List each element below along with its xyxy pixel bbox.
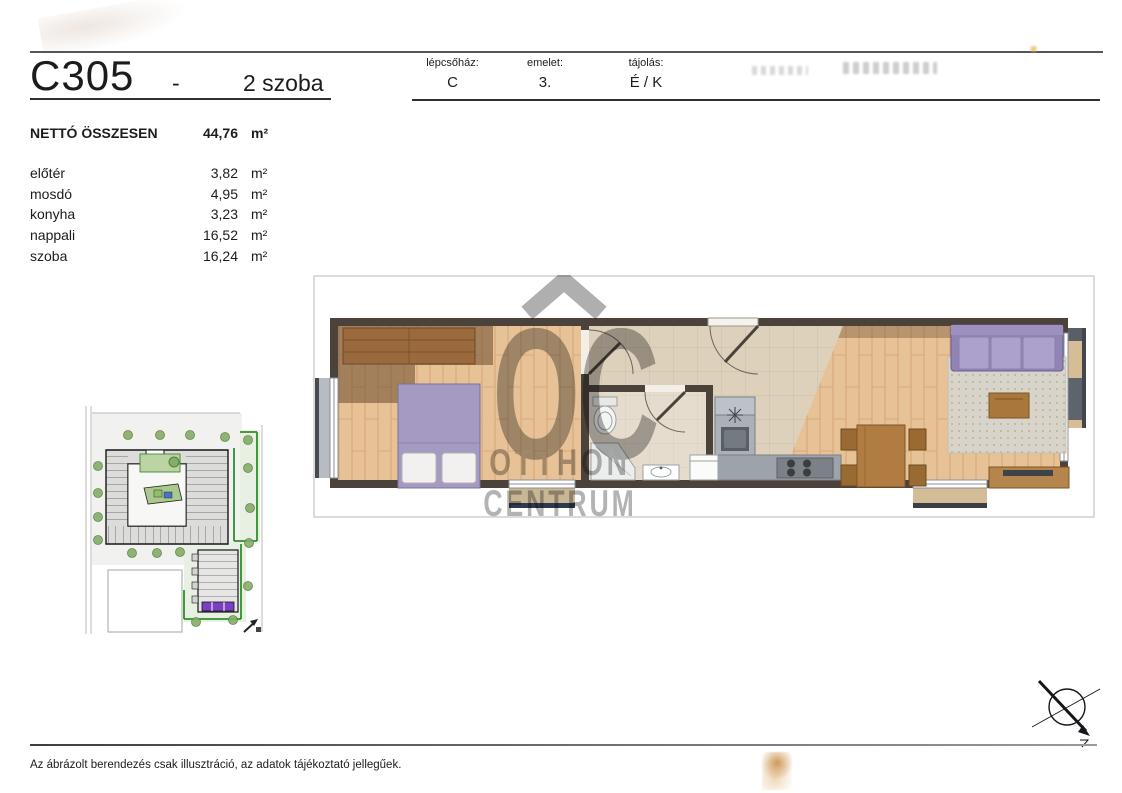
unit-info-table: lépcsőház: C emelet: 3. tájolás: É / K [405, 57, 702, 91]
kitchen-light-symbol [727, 407, 743, 423]
area-row: konyha 3,23 m² [30, 206, 278, 227]
unit-id: C305 [30, 52, 134, 100]
tv-stand [989, 467, 1069, 488]
floorplan-sheet: C305 - 2 szoba lépcsőház: C emelet: 3. t… [0, 0, 1122, 793]
washing-machine [690, 455, 718, 480]
info-col-floor: emelet: 3. [500, 57, 590, 91]
footer-rule [30, 744, 1097, 746]
balcony-left [315, 378, 330, 478]
room-area-unit: m² [238, 227, 278, 243]
coffee-table [989, 393, 1029, 418]
room-name: nappali [30, 227, 152, 243]
disclaimer-text: Az ábrázolt berendezés csak illusztráció… [30, 759, 401, 771]
watermark-line2: CENTRUM [483, 483, 636, 518]
title-separator: - [172, 70, 180, 97]
room-area-value: 3,23 [152, 206, 238, 222]
watermark-line1: OTTHON [489, 441, 631, 483]
net-total-row: NETTÓ ÖSSZESEN 44,76 m² [30, 125, 278, 141]
site-plan [78, 400, 268, 640]
room-name: konyha [30, 206, 152, 222]
info-underline [412, 99, 1100, 101]
room-area-value: 4,95 [152, 186, 238, 202]
scan-dot [1028, 45, 1039, 53]
pillow [402, 453, 436, 483]
area-row: előtér 3,82 m² [30, 165, 278, 186]
room-name: előtér [30, 165, 152, 181]
balcony-right [1068, 328, 1086, 428]
pillow [442, 453, 476, 483]
info-col-staircase: lépcsőház: C [405, 57, 500, 91]
dining-table [857, 425, 905, 487]
room-area-unit: m² [238, 248, 278, 264]
balcony-living [913, 488, 987, 508]
area-row: mosdó 4,95 m² [30, 186, 278, 207]
net-total-label: NETTÓ ÖSSZESEN [30, 125, 182, 141]
room-area-list: előtér 3,82 m² mosdó 4,95 m² konyha 3,23… [30, 165, 278, 268]
watermark-logo: OC OTTHON CENTRUM [483, 281, 657, 518]
staircase-label: lépcsőház: [405, 57, 500, 69]
room-area-unit: m² [238, 186, 278, 202]
room-area-unit: m² [238, 206, 278, 222]
area-row: szoba 16,24 m² [30, 248, 278, 269]
net-total-unit: m² [238, 125, 278, 141]
room-area-value: 3,82 [152, 165, 238, 181]
sofa [951, 325, 1063, 371]
chair [841, 429, 858, 450]
faded-text [752, 66, 808, 75]
floorplan-drawing: OC OTTHON CENTRUM [313, 275, 1095, 518]
room-area-value: 16,52 [152, 227, 238, 243]
room-area-unit: m² [238, 165, 278, 181]
room-count: 2 szoba [243, 70, 324, 97]
neighbor-building [108, 570, 182, 632]
floor-label: emelet: [500, 57, 590, 69]
room-area-value: 16,24 [152, 248, 238, 264]
bed [398, 384, 480, 488]
room-name: mosdó [30, 186, 152, 202]
garden [144, 484, 182, 504]
header-rule [30, 51, 1103, 53]
north-compass-icon [1022, 678, 1102, 750]
annex-building [192, 550, 238, 612]
chair [841, 465, 858, 486]
chair [909, 465, 926, 486]
title-underline [30, 98, 331, 100]
orientation-label: tájolás: [590, 57, 702, 69]
scan-blob [762, 752, 792, 790]
entrance-door-sill [708, 318, 758, 326]
chair [909, 429, 926, 450]
area-row: nappali 16,52 m² [30, 227, 278, 248]
staircase-value: C [405, 74, 500, 91]
info-col-orientation: tájolás: É / K [590, 57, 702, 91]
net-total-value: 44,76 [182, 125, 238, 141]
site-north-arrow [244, 619, 261, 632]
room-name: szoba [30, 248, 152, 264]
floor-value: 3. [500, 74, 590, 91]
faded-text [843, 62, 937, 74]
highlighted-unit [202, 602, 234, 611]
orientation-value: É / K [590, 74, 702, 91]
main-building [106, 450, 228, 544]
